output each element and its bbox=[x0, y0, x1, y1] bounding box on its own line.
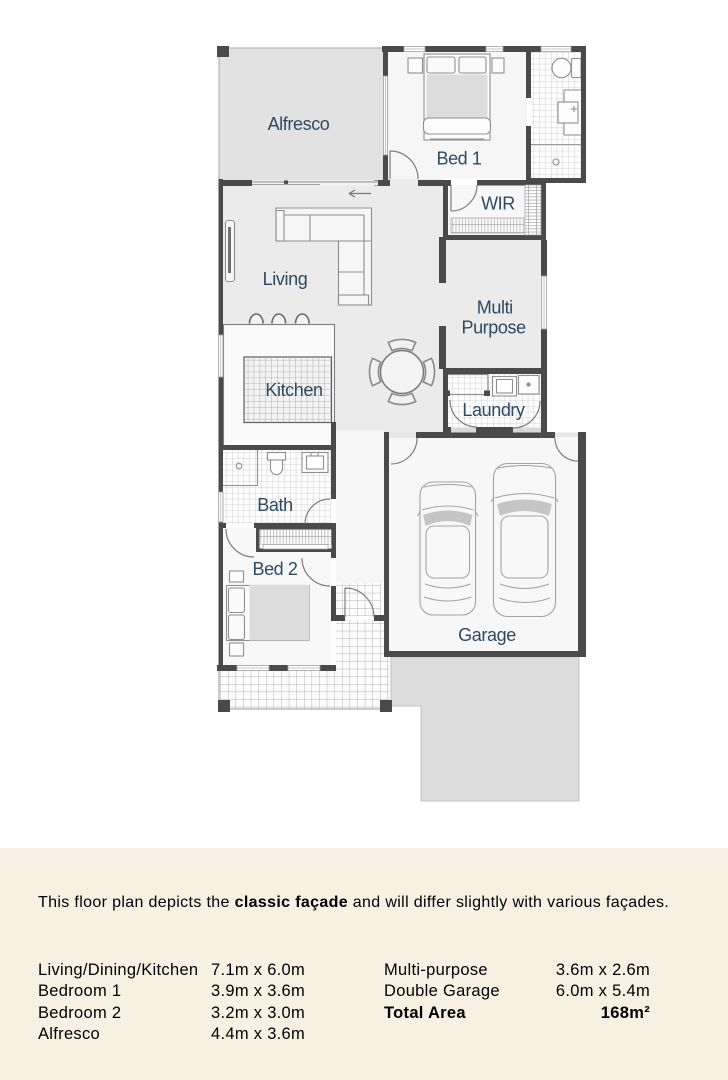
svg-text:Living: Living bbox=[263, 269, 308, 289]
svg-text:Alfresco: Alfresco bbox=[268, 114, 330, 134]
svg-text:Garage: Garage bbox=[458, 625, 516, 645]
svg-text:Multi: Multi bbox=[477, 298, 513, 318]
svg-text:Bath: Bath bbox=[257, 495, 292, 515]
svg-text:Kitchen: Kitchen bbox=[265, 380, 322, 400]
svg-text:Purpose: Purpose bbox=[461, 318, 526, 338]
svg-text:Laundry: Laundry bbox=[462, 400, 525, 420]
svg-text:Bed 1: Bed 1 bbox=[436, 149, 481, 169]
svg-text:WIR: WIR bbox=[481, 194, 515, 214]
svg-text:Bed 2: Bed 2 bbox=[252, 559, 297, 579]
